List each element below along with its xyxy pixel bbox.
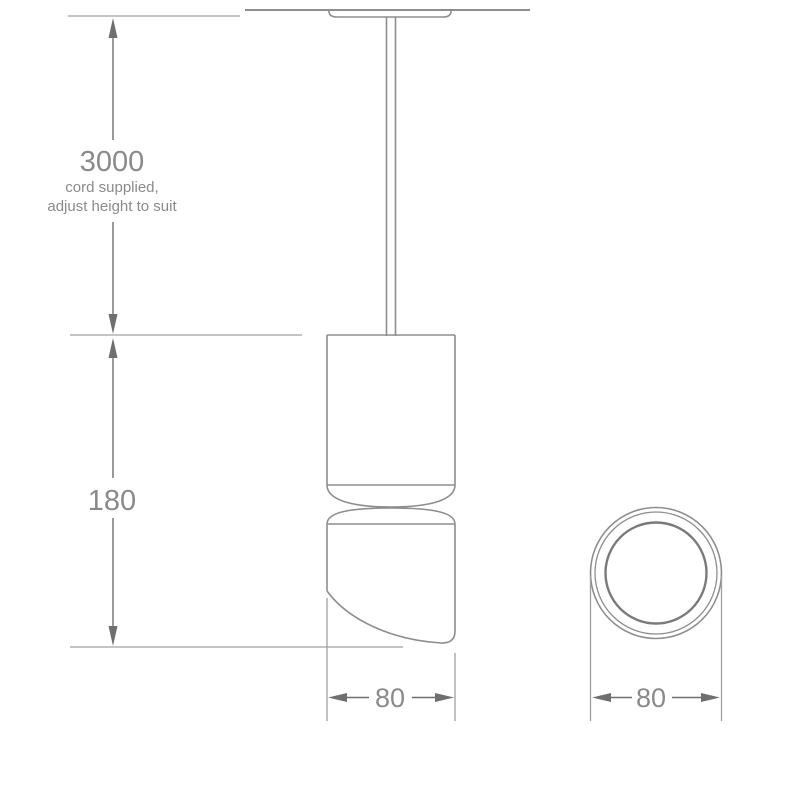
width-value: 80 bbox=[375, 683, 405, 713]
body-width-dimension: 80 bbox=[327, 598, 455, 721]
arrow-up-icon bbox=[109, 338, 118, 358]
arrow-right-icon bbox=[701, 693, 720, 702]
pendant-light-technical-drawing: 3000 cord supplied, adjust height to sui… bbox=[0, 0, 800, 800]
lamp-head bbox=[327, 508, 455, 643]
canopy bbox=[329, 10, 451, 17]
diameter-dimension: 80 bbox=[591, 576, 722, 721]
lamp-body bbox=[327, 335, 455, 507]
inner-rim-circle bbox=[595, 512, 717, 634]
head-cut-face bbox=[327, 591, 441, 643]
suspension-cord bbox=[387, 17, 396, 336]
outer-rim-circle bbox=[591, 508, 722, 639]
drawing-canvas: 3000 cord supplied, adjust height to sui… bbox=[0, 0, 800, 800]
lens-circle bbox=[606, 523, 707, 624]
arrow-left-icon bbox=[328, 693, 347, 702]
cord-length-value: 3000 bbox=[80, 146, 145, 178]
height-value: 180 bbox=[88, 485, 136, 517]
cord-note-line1: cord supplied, bbox=[65, 179, 158, 196]
cord-note-line2: adjust height to suit bbox=[47, 198, 177, 215]
head-top-cap bbox=[327, 508, 455, 524]
arrow-up-icon bbox=[109, 18, 118, 38]
diameter-value: 80 bbox=[636, 683, 666, 713]
cord-length-dimension: 3000 cord supplied, adjust height to sui… bbox=[47, 18, 177, 334]
end-view: 80 bbox=[591, 508, 722, 722]
height-dimension: 180 bbox=[88, 338, 136, 646]
body-bottom-cap bbox=[327, 485, 455, 507]
arrow-down-icon bbox=[109, 626, 118, 646]
side-elevation-view: 3000 cord supplied, adjust height to sui… bbox=[47, 10, 530, 721]
arrow-left-icon bbox=[592, 693, 611, 702]
arrow-down-icon bbox=[109, 314, 118, 334]
head-right-edge bbox=[441, 524, 455, 643]
arrow-right-icon bbox=[435, 693, 454, 702]
